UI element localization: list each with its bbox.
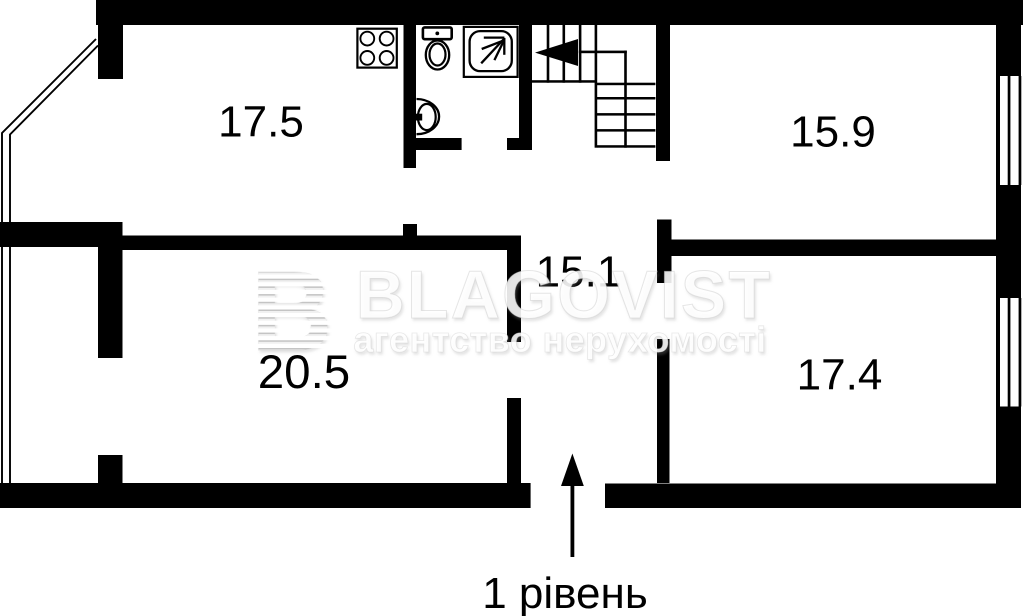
svg-text:агентство нерухомості: агентство нерухомості <box>353 319 766 360</box>
svg-text:1 рівень: 1 рівень <box>482 569 648 616</box>
svg-text:17.4: 17.4 <box>797 351 883 400</box>
svg-text:17.5: 17.5 <box>218 98 304 147</box>
svg-text:15.9: 15.9 <box>790 108 876 157</box>
